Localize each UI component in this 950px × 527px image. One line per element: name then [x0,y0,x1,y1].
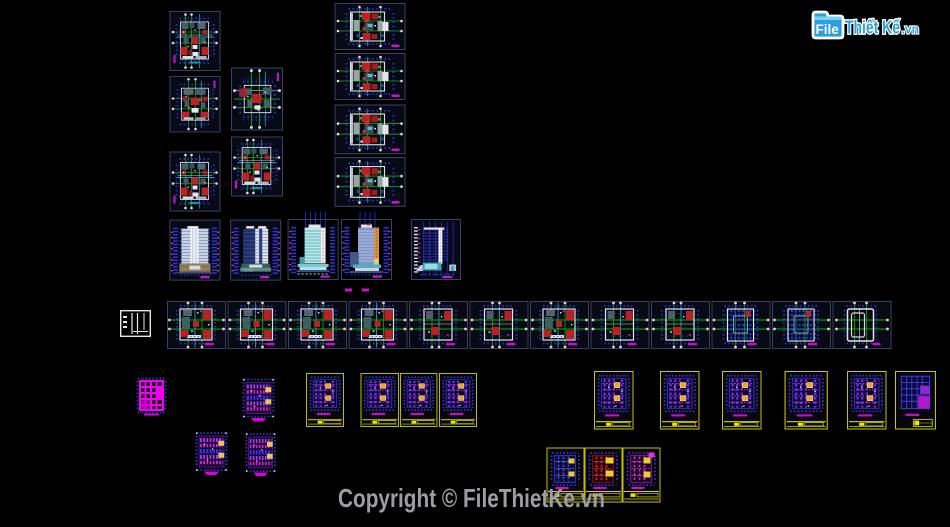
svg-text:Copyright © FileThietKe.vn: Copyright © FileThietKe.vn [338,483,605,513]
svg-text:File: File [816,22,840,37]
svg-text:.vn: .vn [902,22,920,37]
svg-text:Thiết Kế: Thiết Kế [845,18,901,38]
